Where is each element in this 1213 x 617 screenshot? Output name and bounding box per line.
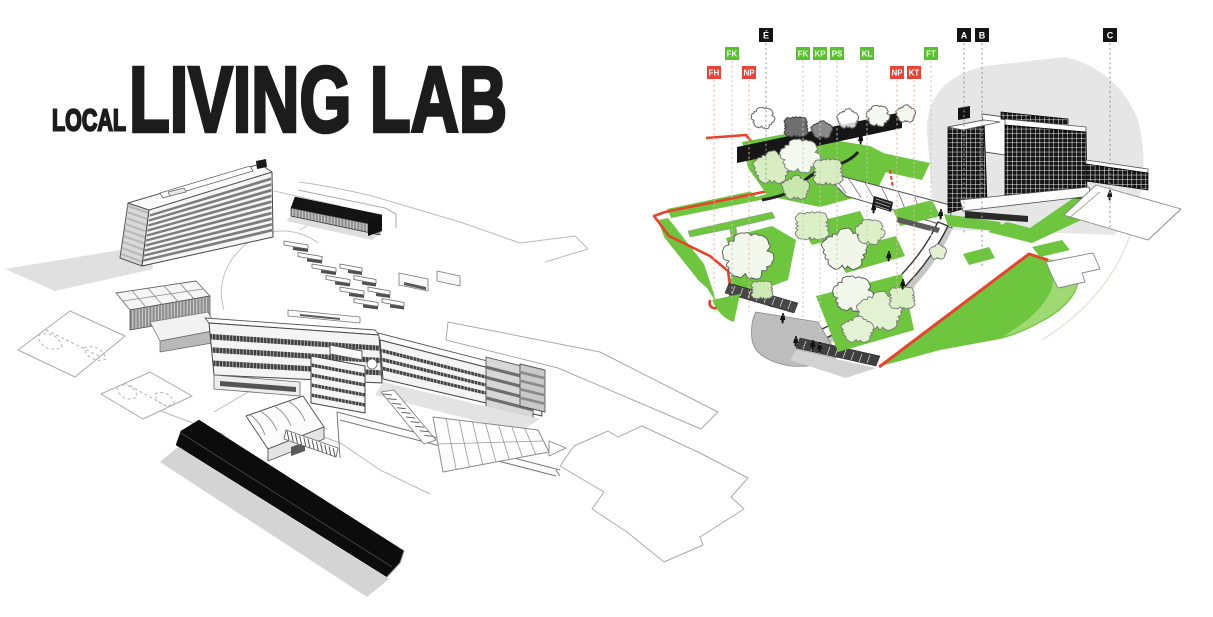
svg-text:É: É	[763, 31, 769, 41]
svg-text:LIVING LAB: LIVING LAB	[129, 48, 507, 152]
svg-text:B: B	[979, 31, 986, 41]
svg-text:KL: KL	[862, 50, 873, 59]
svg-text:FK: FK	[727, 50, 738, 59]
svg-text:NP: NP	[743, 69, 755, 78]
svg-text:PS: PS	[832, 50, 843, 59]
svg-text:FH: FH	[709, 69, 720, 78]
svg-text:KT: KT	[909, 69, 920, 78]
svg-text:NP: NP	[891, 69, 903, 78]
svg-text:FK: FK	[798, 50, 809, 59]
svg-text:LOCAL: LOCAL	[52, 103, 126, 138]
svg-text:A: A	[961, 31, 968, 41]
svg-text:FT: FT	[926, 50, 936, 59]
svg-text:KP: KP	[814, 50, 826, 59]
svg-text:C: C	[1107, 31, 1114, 41]
